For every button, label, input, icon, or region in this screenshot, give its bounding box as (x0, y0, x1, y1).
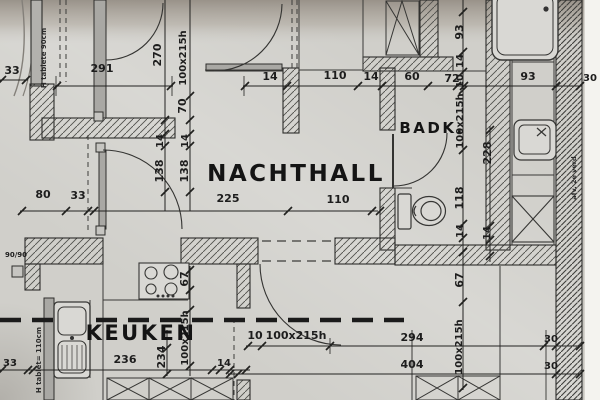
dimension-label: 33 (70, 189, 85, 202)
wall (25, 264, 40, 290)
dimension-label: 234 (155, 345, 168, 368)
dimension-label: 30 (544, 334, 558, 345)
dimension-label: 93 (453, 24, 466, 39)
dimension-label: 14 (482, 226, 493, 240)
dimension-label: 291 (91, 62, 114, 75)
wall (335, 238, 395, 264)
dimension-label: 138 (178, 160, 191, 183)
dimension-label: 14 (217, 358, 231, 369)
dimension-label: 236 (114, 353, 137, 366)
wall (380, 68, 395, 130)
post-90x90 (12, 266, 23, 277)
washbasin-icon (514, 120, 556, 160)
wall (363, 57, 453, 71)
dimension-label: 30 (544, 361, 558, 372)
dimension-label: 14 (455, 224, 466, 238)
dimension-label: 100x215h (178, 30, 189, 85)
wall (181, 238, 258, 264)
dimension-label: 67 (453, 272, 466, 287)
dimension-label: 14 (455, 54, 466, 68)
dimension-label: 33 (4, 64, 19, 77)
room-label: KEUKEN (86, 321, 197, 345)
dimension-label: 100x215h (266, 329, 327, 342)
dimension-label: 33 (3, 358, 17, 369)
dimension-label: 14 (180, 134, 191, 148)
wall (25, 238, 103, 264)
floor-plan-photo: 33291270100x215h701414138138141101460729… (0, 0, 600, 400)
dimension-label: 70 (176, 98, 189, 114)
floor-plan-drawing: 33291270100x215h701414138138141101460729… (0, 0, 600, 400)
dimension-label: 14 (155, 134, 166, 148)
dimension-label: 14 (363, 70, 379, 83)
dimension-label: 67 (178, 271, 191, 286)
door-jamb (237, 380, 250, 400)
annotation-label: H tablete 90cm (40, 28, 48, 88)
dimension-label: 294 (401, 331, 424, 344)
shower-tray-icon (492, 0, 558, 60)
exterior-wall (556, 0, 582, 400)
room-label: BADK. (399, 119, 464, 137)
dimension-label: 110 (324, 69, 347, 82)
wall (283, 68, 299, 133)
dimension-label: 90/90 (5, 251, 27, 259)
dimension-label: 60 (404, 70, 420, 83)
partition-wall (44, 298, 54, 400)
door-leaf (99, 150, 106, 229)
dimension-label: 138 (153, 160, 166, 183)
room-label: NACHTHALL (207, 161, 385, 187)
door-jamb (237, 264, 250, 308)
dimension-label: 118 (453, 187, 466, 210)
wall (420, 0, 438, 57)
paper-edge (584, 0, 600, 400)
dimension-label: 10 (247, 329, 263, 342)
dimension-label: 30 (583, 73, 597, 84)
wall (395, 245, 556, 265)
dimension-label: 225 (217, 192, 240, 205)
annotation-label: H tablet= 110cm (35, 327, 43, 393)
dimension-label: 80 (35, 188, 51, 201)
dimension-label: 228 (481, 142, 494, 165)
annotation-label: afv. 2e verd (570, 156, 578, 200)
dimension-label: 270 (151, 43, 164, 66)
dimension-label: 404 (401, 358, 424, 371)
partition-wall (94, 0, 106, 118)
dimension-label: 93 (520, 70, 535, 83)
dimension-label: 110 (327, 193, 350, 206)
dimension-label: 100x215h (454, 319, 465, 374)
dimension-label: 14 (262, 70, 278, 83)
dimension-label: 10 (455, 74, 466, 88)
